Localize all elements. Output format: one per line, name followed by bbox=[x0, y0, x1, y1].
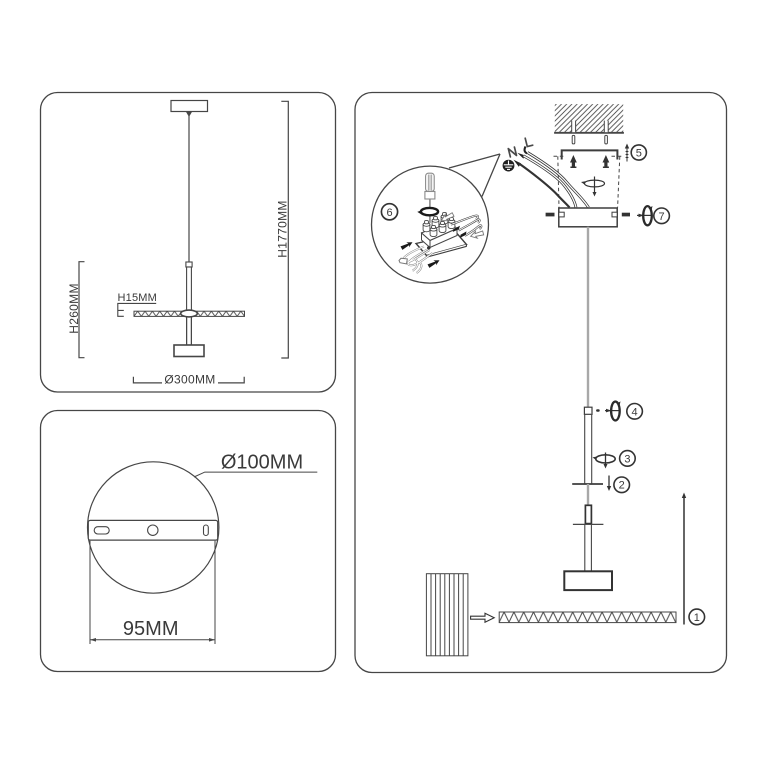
svg-text:Ø300MM: Ø300MM bbox=[164, 373, 215, 387]
svg-text:Ø100MM: Ø100MM bbox=[221, 452, 303, 474]
svg-text:H260MM: H260MM bbox=[67, 283, 81, 333]
svg-text:6: 6 bbox=[386, 207, 392, 219]
svg-text:7: 7 bbox=[659, 211, 665, 223]
svg-text:1: 1 bbox=[694, 612, 700, 624]
svg-text:3: 3 bbox=[624, 453, 630, 465]
svg-text:H15MM: H15MM bbox=[118, 292, 158, 304]
svg-text:5: 5 bbox=[636, 147, 642, 159]
svg-text:4: 4 bbox=[632, 406, 638, 418]
svg-text:95MM: 95MM bbox=[123, 618, 179, 640]
svg-text:H1770MM: H1770MM bbox=[276, 200, 290, 257]
svg-text:2: 2 bbox=[619, 480, 625, 492]
